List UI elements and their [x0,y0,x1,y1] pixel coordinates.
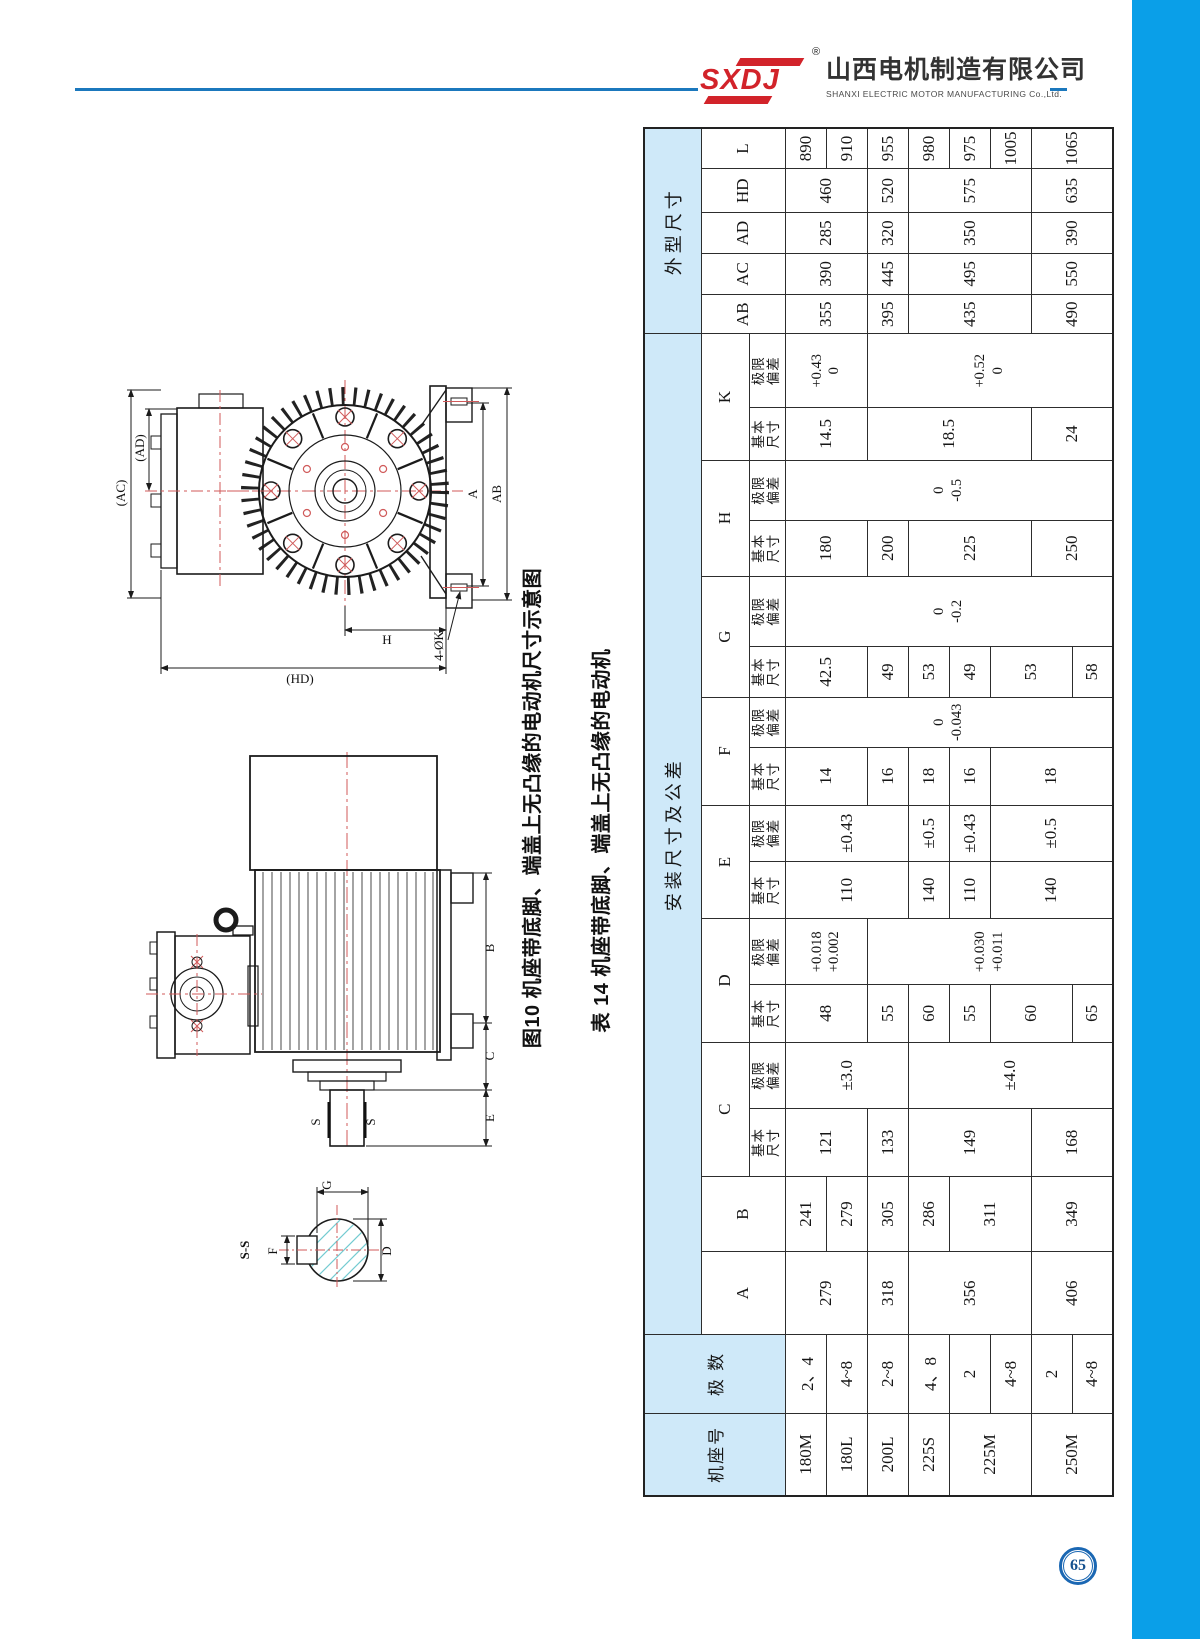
cell-A: 406 [1031,1252,1113,1335]
dim-label-h: H [382,632,391,647]
cell-D-dev: +0.030 +0.011 [867,919,1113,985]
cell-B: 286 [908,1176,949,1252]
cell-F-basic: 14 [785,748,867,806]
cell-B: 241 [785,1176,826,1252]
cell-L: 910 [826,128,867,169]
cell-E-dev: ±0.43 [949,805,990,861]
subheader-dev: 极限 偏差 [749,460,785,521]
cell-frame: 225S [908,1413,949,1496]
cell-H-basic: 250 [1031,521,1113,576]
subheader-dev: 极限 偏差 [749,919,785,985]
cell-AC: 495 [908,253,1031,294]
dim-label-ab: AB [489,485,504,503]
shaft-section-drawing: G F D S-S [235,1165,400,1290]
section-mark-s2: S [363,1118,378,1125]
cell-frame: 180L [826,1413,867,1496]
cell-H-dev: 0 -0.5 [785,460,1113,521]
subheader-basic: 基本 尺寸 [749,1109,785,1177]
terminal-box-side [146,932,262,1058]
catalog-page: SXDJ ® 山西电机制造有限公司 SHANXI ELECTRIC MOTOR … [0,0,1200,1639]
cell-AC: 445 [867,253,908,294]
cell-H-basic: 180 [785,521,867,576]
cell-poles: 2、4 [785,1335,826,1414]
cell-G-basic: 49 [949,647,990,697]
cell-A: 318 [867,1252,908,1335]
company-name-block: 山西电机制造有限公司 SHANXI ELECTRIC MOTOR MANUFAC… [826,50,1050,99]
dim-label-ad: (AD) [132,434,147,461]
page-number: 65 [1063,1551,1093,1581]
cell-poles: 4~8 [990,1335,1031,1414]
cell-C-basic: 149 [908,1109,1031,1177]
cell-frame: 250M [1031,1413,1113,1496]
cell-D-basic: 60 [908,985,949,1043]
cell-C-dev: ±4.0 [908,1042,1113,1109]
subheader-basic: 基本 尺寸 [749,985,785,1043]
col-header-AD: AD [701,213,785,253]
cell-frame: 225M [949,1413,1031,1496]
cell-frame: 200L [867,1413,908,1496]
lifting-eyebolt [216,910,253,935]
col-header-C: C [701,1042,749,1176]
col-header-AC: AC [701,253,785,294]
company-name-cn: 山西电机制造有限公司 [826,50,1050,86]
logo-bar-bottom [704,96,773,104]
cell-K-basic: 24 [1031,408,1113,460]
dim-label-c: C [482,1052,497,1061]
cell-G-basic: 42.5 [785,647,867,697]
cell-F-basic: 18 [990,748,1113,806]
cell-E-dev: ±0.5 [908,805,949,861]
subheader-basic: 基本 尺寸 [749,408,785,460]
cell-poles: 2 [1031,1335,1072,1414]
cell-L: 955 [867,128,908,169]
subheader-basic: 基本 尺寸 [749,521,785,576]
cell-C-dev: ±3.0 [785,1042,908,1109]
cell-AD: 390 [1031,213,1113,253]
cell-L: 1005 [990,128,1031,169]
cell-poles: 4~8 [826,1335,867,1414]
col-header-E: E [701,805,749,919]
dim-label-e: E [482,1114,497,1122]
cell-K-basic: 14.5 [785,408,867,460]
cell-AD: 320 [867,213,908,253]
dim-label-hd: (HD) [286,671,313,686]
motor-side-view-drawing: B C E S S [130,750,500,1150]
section-mark-s1: S [308,1118,323,1125]
motor-end-view-drawing: (AC) (AD) A AB H (HD) 4-ØK [115,378,515,698]
col-header-F: F [701,697,749,805]
cell-D-basic: 55 [949,985,990,1043]
registered-mark: ® [812,46,820,58]
cell-frame: 180M [785,1413,826,1496]
dim-label-f: F [265,1247,280,1254]
cell-G-basic: 53 [990,647,1072,697]
cell-B: 349 [1031,1176,1113,1252]
subheader-basic: 基本 尺寸 [749,862,785,920]
group-header-mount: 安装尺寸及公差 [644,334,701,1335]
cell-D-basic: 55 [867,985,908,1043]
cell-G-basic: 49 [867,647,908,697]
col-header-H: H [701,460,749,576]
table-header-row: A B C D E F G H K AB AC AD HD L [701,128,749,1496]
dim-label-b: B [482,943,497,952]
cell-G-basic: 58 [1072,647,1113,697]
side-view-dimensions [366,873,492,1146]
cell-E-dev: ±0.43 [785,805,908,861]
cell-D-basic: 60 [990,985,1072,1043]
table-title-wrap: 表 14 机座带底脚、端盖上无凸缘的电动机 [583,598,615,1083]
cell-F-basic: 16 [867,748,908,806]
cell-H-basic: 200 [867,521,908,576]
cell-D-basic: 48 [785,985,867,1043]
cell-AC: 550 [1031,253,1113,294]
subheader-dev: 极限 偏差 [749,576,785,647]
cell-K-dev: +0.52 0 [867,334,1113,408]
cell-A: 279 [785,1252,867,1335]
dim-label-d: D [379,1246,394,1255]
col-header-A: A [701,1252,785,1335]
right-blue-band [1132,0,1200,1639]
cell-AC: 390 [785,253,867,294]
cell-A: 356 [908,1252,1031,1335]
cell-K-basic: 18.5 [867,408,1031,460]
col-header-D: D [701,919,749,1042]
col-header-AB: AB [701,295,785,334]
page-number-badge: 65 [1059,1547,1097,1585]
feet-side [437,870,473,1060]
cell-H-basic: 225 [908,521,1031,576]
cell-L: 975 [949,128,990,169]
cell-E-basic: 110 [949,862,990,920]
col-header-frame: 机座号 [644,1413,785,1496]
cell-G-dev: 0 -0.2 [785,576,1113,647]
cell-AB: 395 [867,295,908,334]
cell-L: 890 [785,128,826,169]
cell-G-basic: 53 [908,647,949,697]
figure-caption-wrap: 图10 机座带底脚、端盖上无凸缘的电动机尺寸示意图 [514,558,546,1058]
col-header-poles: 极 数 [644,1335,785,1414]
subheader-dev: 极限 偏差 [749,1042,785,1109]
dim-label-4k: 4-ØK [431,631,446,661]
col-header-L: L [701,128,785,169]
section-title: S-S [237,1241,252,1260]
cell-poles: 4、8 [908,1335,949,1414]
subheader-dev: 极限 偏差 [749,805,785,861]
figure-caption: 图10 机座带底脚、端盖上无凸缘的电动机尺寸示意图 [514,558,546,1058]
section-dimensions [281,1187,387,1281]
cell-L: 980 [908,128,949,169]
dimension-table: 机座号 极 数 安装尺寸及公差 外型尺寸 A B C D E F G H [643,127,1114,1497]
cell-F-basic: 18 [908,748,949,806]
cell-D-dev: +0.018 +0.002 [785,919,867,985]
col-header-K: K [701,334,749,460]
dim-label-g: G [319,1180,334,1189]
cell-B: 279 [826,1176,867,1252]
cell-HD: 635 [1031,169,1113,213]
subheader-basic: 基本 尺寸 [749,647,785,697]
cell-poles: 2 [949,1335,990,1414]
col-header-HD: HD [701,169,785,213]
cell-F-basic: 16 [949,748,990,806]
cell-HD: 460 [785,169,867,213]
table-header-row: 机座号 极 数 安装尺寸及公差 外型尺寸 [644,128,701,1496]
cell-E-dev: ±0.5 [990,805,1113,861]
cell-E-basic: 140 [990,862,1113,920]
cell-HD: 575 [908,169,1031,213]
cell-poles: 2~8 [867,1335,908,1414]
cell-D-basic: 65 [1072,985,1113,1043]
group-header-outline: 外型尺寸 [644,128,701,334]
cell-AB: 435 [908,295,1031,334]
cell-L: 1065 [1031,128,1113,169]
cell-C-basic: 133 [867,1109,908,1177]
cell-B: 305 [867,1176,908,1252]
sxdj-logo-icon: SXDJ ® [700,58,818,106]
company-logo: SXDJ ® 山西电机制造有限公司 SHANXI ELECTRIC MOTOR … [698,44,1050,114]
company-name-en: SHANXI ELECTRIC MOTOR MANUFACTURING Co.,… [826,89,1050,99]
dim-label-a: A [465,489,480,499]
cell-AB: 490 [1031,295,1113,334]
logo-letters: SXDJ [700,64,780,97]
cell-F-dev: 0 -0.043 [785,697,1113,747]
cell-K-dev: +0.43 0 [785,334,867,408]
cell-B: 311 [949,1176,1031,1252]
col-header-B: B [701,1176,785,1252]
cell-AD: 350 [908,213,1031,253]
dim-label-ac: (AC) [115,480,128,507]
cell-C-basic: 121 [785,1109,867,1177]
subheader-dev: 极限 偏差 [749,334,785,408]
subheader-dev: 极限 偏差 [749,697,785,747]
table-row: 180M 2、4 279 241 121 ±3.0 48 +0.018 +0.0… [785,128,826,1496]
cell-AB: 355 [785,295,867,334]
cell-poles: 4~8 [1072,1335,1113,1414]
cell-E-basic: 110 [785,862,908,920]
subheader-basic: 基本 尺寸 [749,748,785,806]
cell-AD: 285 [785,213,867,253]
table-title: 表 14 机座带底脚、端盖上无凸缘的电动机 [583,598,615,1083]
cell-E-basic: 140 [908,862,949,920]
dimension-table-wrap: 机座号 极 数 安装尺寸及公差 外型尺寸 A B C D E F G H [643,127,1115,1497]
col-header-G: G [701,576,749,697]
cell-HD: 520 [867,169,908,213]
table-row: 225S 4、8 356 286 149 ±4.0 60 140 ±0.5 18… [908,128,949,1496]
cell-C-basic: 168 [1031,1109,1113,1177]
